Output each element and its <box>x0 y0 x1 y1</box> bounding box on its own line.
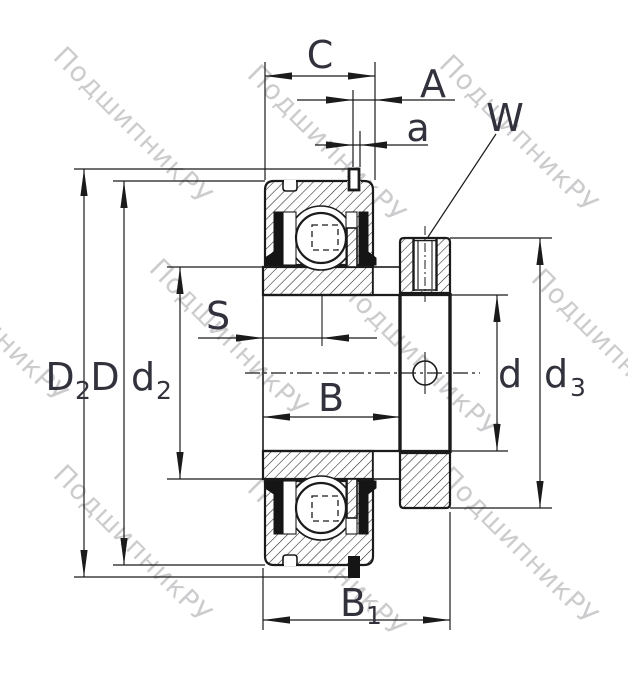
w-leader-line <box>428 134 496 237</box>
dim-label-d: d <box>498 352 522 396</box>
snap-ring-notch-bottom <box>283 555 297 566</box>
dim-label-d2-sub: 2 <box>156 376 172 405</box>
dim-label-B1: B <box>340 581 366 625</box>
anti-rotation-pin-top <box>347 169 361 191</box>
watermark-text: ПодшипникРУ <box>433 461 604 632</box>
seal-groove-left-bottom <box>283 481 296 534</box>
watermark-text: ПодшипникРУ <box>47 459 218 630</box>
seal-groove-left-top <box>283 212 296 265</box>
locking-collar-bottom <box>400 453 450 508</box>
ball-bottom <box>296 483 346 533</box>
snap-ring-notch-top <box>283 180 297 191</box>
dim-label-S: S <box>206 294 230 338</box>
dim-label-W: W <box>486 96 524 140</box>
dim-label-B1-sub: 1 <box>366 601 382 630</box>
inner-ring-shoulder-bottom <box>347 479 357 518</box>
dim-label-d3-sub: 3 <box>570 373 586 402</box>
dim-label-D2-sub: 2 <box>75 376 91 405</box>
technical-drawing-canvas: ПодшипникРУ ПодшипникРУ ПодшипникРУ Подш… <box>0 0 628 676</box>
inner-ring-shoulder-top <box>347 228 357 267</box>
inner-ring-bottom-section <box>263 451 373 479</box>
watermark-text: ПодшипникРУ <box>47 41 218 212</box>
dim-label-B: B <box>318 376 344 420</box>
dim-label-D2: D <box>45 355 74 399</box>
dim-label-D: D <box>90 355 119 399</box>
ball-top <box>296 213 346 263</box>
dim-label-d2: d <box>131 355 155 399</box>
bearing-dimension-drawing: ПодшипникРУ ПодшипникРУ ПодшипникРУ Подш… <box>0 0 628 676</box>
anti-rotation-pin-bottom <box>348 556 360 578</box>
inner-ring-top-section <box>263 267 373 295</box>
outer-ring-bottom-section <box>263 451 400 578</box>
dim-label-C: C <box>307 33 334 77</box>
dim-label-d3: d <box>544 352 568 396</box>
inner-ring-extension-top <box>373 267 400 295</box>
watermark-text: ПодшипникРУ <box>333 273 504 444</box>
dim-label-a: a <box>406 106 429 150</box>
locking-collar-top <box>400 226 450 302</box>
dim-label-A: A <box>420 62 446 106</box>
inner-ring-extension-bottom <box>373 451 400 479</box>
